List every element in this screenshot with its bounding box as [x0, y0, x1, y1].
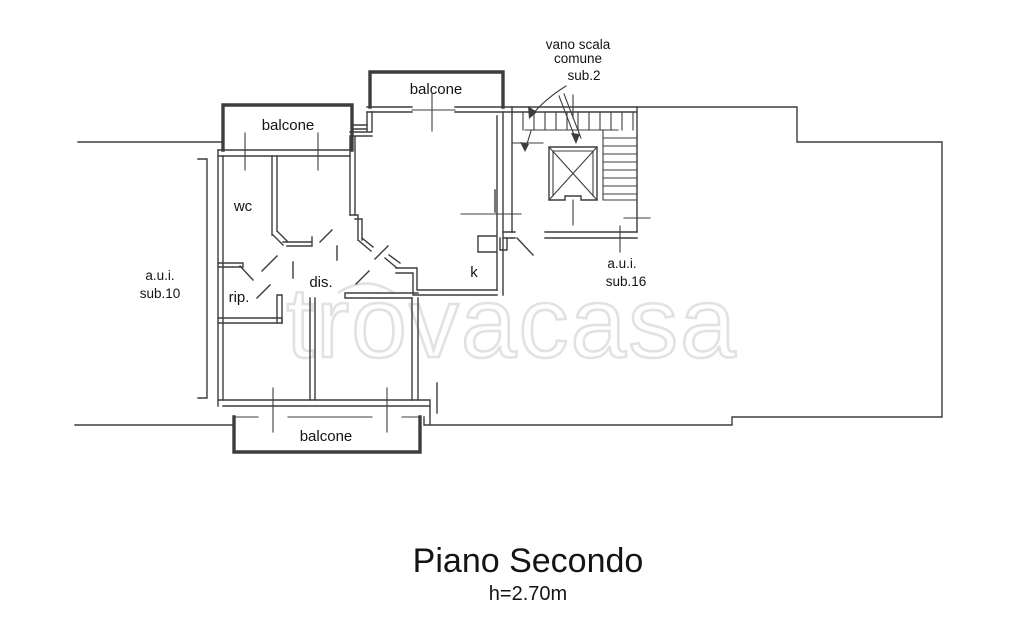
watermark-text: trovacasa: [286, 267, 738, 379]
door-room-2: [320, 230, 332, 242]
door-room-a: [257, 285, 270, 298]
floor-plan-page: trovacasa balcone balcone balcone: [0, 0, 1024, 640]
page-title: Piano Secondo: [413, 542, 644, 580]
door-kitchen: [375, 246, 388, 259]
windows: [245, 93, 650, 432]
sub16-line1: a.u.i.: [607, 256, 636, 271]
balcony-top-middle: balcone: [370, 72, 503, 107]
label-wc: wc: [233, 198, 253, 215]
sub16-line2: sub.16: [606, 274, 647, 289]
stair-label-line3: sub.2: [567, 68, 600, 83]
label-k: k: [470, 264, 478, 281]
door-entry: [517, 238, 533, 255]
balcony-top-left-label: balcone: [262, 117, 315, 134]
balcony-top-middle-label: balcone: [410, 81, 463, 98]
label-dis: dis.: [309, 274, 332, 291]
stair-direction-arrow: [571, 133, 580, 144]
watermark: trovacasa: [286, 267, 738, 379]
sub10-line2: sub.10: [140, 286, 181, 301]
sub10-line1: a.u.i.: [145, 268, 174, 283]
stair-label-line2: comune: [554, 51, 602, 66]
label-rip: rip.: [229, 289, 250, 306]
unit-sub10: a.u.i. sub.10: [140, 159, 207, 398]
door-rip: [240, 266, 253, 280]
stair-label-line1: vano scala: [546, 37, 611, 52]
balcony-bottom-label: balcone: [300, 428, 353, 445]
door-wc: [262, 256, 277, 271]
sub10-bracket: [198, 159, 207, 398]
title-block: Piano Secondo h=2.70m: [413, 542, 644, 605]
balcony-bottom: balcone: [234, 417, 420, 452]
floor-plan-drawing: trovacasa balcone balcone balcone: [0, 0, 1024, 640]
balcony-top-left: balcone: [223, 105, 352, 150]
ceiling-height: h=2.70m: [489, 583, 567, 605]
stair-label-arrowhead: [528, 106, 537, 119]
